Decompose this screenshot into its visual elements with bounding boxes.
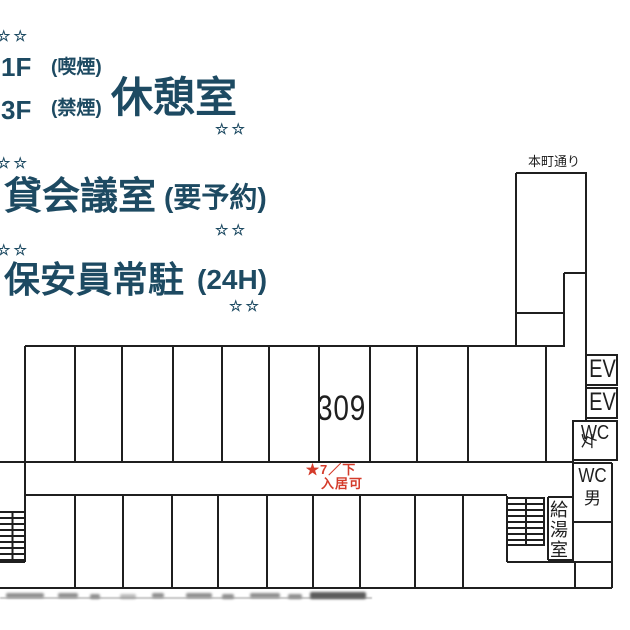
- meeting-room-note: (要予約): [164, 184, 267, 212]
- street-wing: [516, 173, 586, 421]
- floor-plan: [0, 0, 630, 630]
- stars-top-left: ☆☆: [0, 29, 30, 44]
- right-staircase: [507, 498, 544, 545]
- wc-female-gender-label: 女: [579, 419, 595, 463]
- stars-rest-room: ☆☆: [215, 122, 248, 137]
- floor-plan-page: ☆☆ 1F (喫煙) 3F (禁煙) 休憩室 ☆☆ ☆☆ 貸会議室 (要予約) …: [0, 0, 630, 630]
- floor3-label: 3F: [1, 97, 31, 123]
- rest-room-label: 休憩室: [111, 77, 237, 119]
- floor3-note: (禁煙): [51, 99, 102, 118]
- stars-security-bottom: ☆☆: [229, 299, 262, 314]
- stars-meeting-left: ☆☆: [0, 156, 30, 171]
- wc-male-wc-label: WC: [576, 466, 609, 486]
- floor1-note: (喫煙): [51, 58, 102, 77]
- kitchenette-label: 給湯室: [549, 500, 567, 560]
- stars-meeting-bottom: ☆☆: [215, 223, 248, 238]
- meeting-room-label: 貸会議室: [4, 178, 156, 216]
- elevator-2-label: EV: [589, 390, 614, 415]
- floor1-label: 1F: [1, 54, 31, 80]
- stars-security-left: ☆☆: [0, 243, 30, 258]
- room-309-label: 309: [317, 391, 366, 426]
- street-label: 本町通り: [528, 155, 580, 168]
- security-label: 保安員常駐: [4, 262, 184, 298]
- wc-male-gender-label: 男: [573, 490, 612, 507]
- availability-note-line1: ★7／下: [306, 463, 356, 476]
- upper-room-row: [0, 346, 573, 562]
- left-staircase: [0, 512, 25, 562]
- elevator-1-label: EV: [589, 357, 614, 382]
- security-note: (24H): [197, 266, 267, 294]
- availability-note-line2: 入居可: [321, 477, 363, 490]
